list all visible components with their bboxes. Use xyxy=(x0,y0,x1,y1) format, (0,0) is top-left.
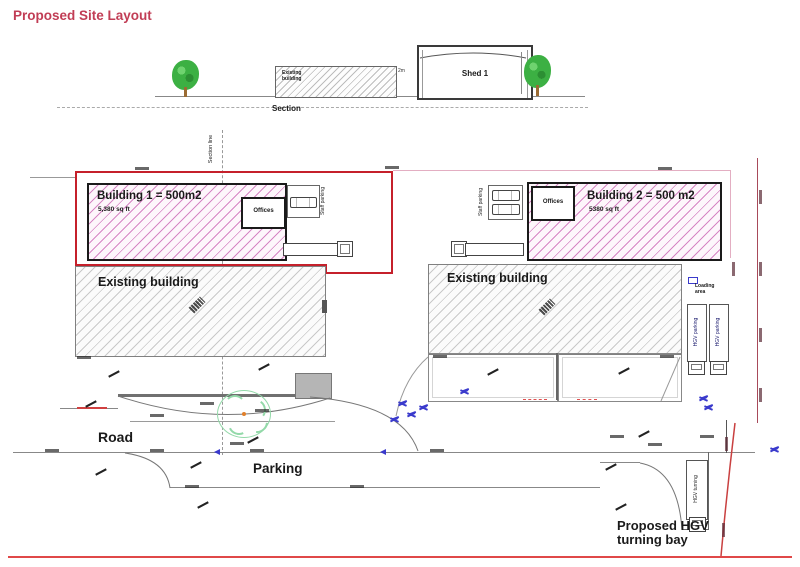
red-dashed-line xyxy=(523,399,547,400)
dimension-tick xyxy=(95,468,107,475)
staff-parking-1-label: Staff parking xyxy=(320,179,326,223)
site-plan-drawing: Proposed Site Layout Existing building 2… xyxy=(0,0,800,567)
dimension-mark xyxy=(350,485,364,488)
dimension-mark xyxy=(648,443,662,446)
section-caption: Section xyxy=(272,104,301,113)
dimension-tick xyxy=(638,430,650,437)
flow-arrow-icon xyxy=(214,449,220,455)
dimension-mark xyxy=(725,437,728,451)
section-line-label: Section line xyxy=(208,127,214,171)
site-boundary-line xyxy=(75,171,393,173)
staff-parking-1-box xyxy=(287,185,320,218)
dimension-mark xyxy=(230,442,244,445)
site-boundary-pink-line xyxy=(393,170,731,171)
car-icon xyxy=(290,197,317,208)
section-shed: Shed 1 xyxy=(417,45,533,100)
dimension-mark xyxy=(658,167,672,170)
road-label: Road xyxy=(98,429,133,445)
road-edge-line xyxy=(600,462,640,463)
hgv-parking-2-label: HGV parking xyxy=(715,307,721,357)
hgv-truck-icon xyxy=(710,361,727,375)
hgv-truck-icon xyxy=(688,361,705,375)
existing-building-right-label: Existing building xyxy=(447,271,548,285)
dimension-mark xyxy=(77,356,91,359)
dimension-mark xyxy=(250,449,264,452)
dimension-mark xyxy=(200,402,214,405)
boundary-extension-line xyxy=(30,177,75,178)
dimension-tick xyxy=(615,503,627,510)
dimension-mark xyxy=(759,190,762,204)
dimension-mark xyxy=(150,414,164,417)
parking-label: Parking xyxy=(253,461,303,476)
unit-label-mark xyxy=(189,297,206,314)
dimension-mark xyxy=(759,388,762,402)
dimension-mark xyxy=(660,355,674,358)
existing-building-right: Existing building xyxy=(428,264,682,355)
plant-icon xyxy=(398,401,407,407)
car-icon xyxy=(492,190,520,201)
building-2-area-label: 5380 sq ft xyxy=(589,206,619,213)
tree-center-dot xyxy=(242,412,246,416)
plant-icon xyxy=(390,417,399,423)
existing-building-left-label: Existing building xyxy=(98,275,199,289)
dimension-tick xyxy=(197,501,209,508)
dimension-mark xyxy=(135,167,149,170)
building-1-label: Building 1 = 500m2 xyxy=(97,190,202,202)
section-existing-building: Existing building xyxy=(275,66,397,98)
yard-divider-wall xyxy=(556,353,558,400)
dimension-mark xyxy=(722,523,725,537)
section-datum-line xyxy=(57,107,588,108)
plant-icon xyxy=(770,447,779,453)
dimension-mark xyxy=(759,262,762,276)
right-boundary-line xyxy=(757,158,758,423)
tree-icon xyxy=(172,60,199,90)
dimension-mark xyxy=(732,262,735,276)
hgv-parking-1-label: HGV parking xyxy=(693,307,699,357)
page-border-line xyxy=(8,556,792,558)
offices-label: Offices xyxy=(243,208,284,214)
dimension-mark xyxy=(45,449,59,452)
site-boundary-line xyxy=(391,171,393,274)
building-1-area-label: 5,380 sq ft xyxy=(98,206,130,213)
loading-area-label: Loading area xyxy=(695,283,723,295)
unit-label-mark xyxy=(539,299,556,316)
section-existing-building-label: Existing building xyxy=(282,70,316,82)
dimension-mark xyxy=(610,435,624,438)
dimension-tick xyxy=(190,461,202,468)
site-boundary-line xyxy=(325,272,393,274)
section-gap-dim-label: 2m xyxy=(398,68,405,74)
offices-label: Offices xyxy=(533,199,573,205)
building-1: Building 1 = 500m2 5,380 sq ft Offices xyxy=(87,183,287,261)
tree-circle-icon xyxy=(217,390,271,438)
shed-label: Shed 1 xyxy=(419,69,531,78)
dimension-mark xyxy=(150,449,164,452)
dimension-mark xyxy=(759,328,762,342)
truck-icon xyxy=(465,243,524,256)
plant-icon xyxy=(704,405,713,411)
red-dashed-line xyxy=(577,399,597,400)
dimension-mark xyxy=(385,166,399,169)
dimension-mark xyxy=(700,435,714,438)
tree-trunk xyxy=(184,87,187,97)
building-block xyxy=(295,373,332,399)
flow-arrow-icon xyxy=(380,449,386,455)
plant-icon xyxy=(419,405,428,411)
plant-icon xyxy=(699,396,708,402)
yard-area xyxy=(558,353,682,402)
car-icon xyxy=(492,204,520,215)
turning-bay-note: Proposed HGV turning bay xyxy=(617,519,709,546)
site-boundary-line xyxy=(75,171,77,266)
staff-parking-2-label: Staff parking xyxy=(478,180,484,224)
yard-area xyxy=(428,353,558,402)
hgv-turning-label: HGV turning xyxy=(693,464,699,514)
existing-building-left: Existing building xyxy=(75,266,326,357)
yard-inner-line xyxy=(562,357,678,398)
tree-trunk xyxy=(536,85,539,96)
dimension-tick xyxy=(108,370,120,377)
truck-icon xyxy=(283,243,339,256)
dimension-tick xyxy=(258,363,270,370)
dimension-mark xyxy=(185,485,199,488)
offices-box: Offices xyxy=(531,186,575,221)
truck-cab-icon xyxy=(337,241,353,257)
plant-icon xyxy=(407,412,416,418)
wall-pillar xyxy=(322,300,327,313)
dimension-mark xyxy=(430,449,444,452)
offices-box: Offices xyxy=(241,197,286,229)
building-2: Offices Building 2 = 500 m2 5380 sq ft xyxy=(527,182,722,261)
staff-parking-2-box xyxy=(488,185,523,220)
page-title: Proposed Site Layout xyxy=(13,8,152,23)
dimension-tick xyxy=(605,463,617,470)
kerb-line-thick xyxy=(118,394,295,397)
building-2-label: Building 2 = 500 m2 xyxy=(587,190,695,202)
red-boundary-stub xyxy=(77,407,107,409)
site-boundary-pink-line xyxy=(730,170,731,258)
parking-edge-line xyxy=(170,487,600,488)
tree-icon xyxy=(524,55,551,88)
yard-inner-line xyxy=(432,357,554,398)
dimension-mark xyxy=(433,355,447,358)
dimension-mark xyxy=(255,409,269,412)
